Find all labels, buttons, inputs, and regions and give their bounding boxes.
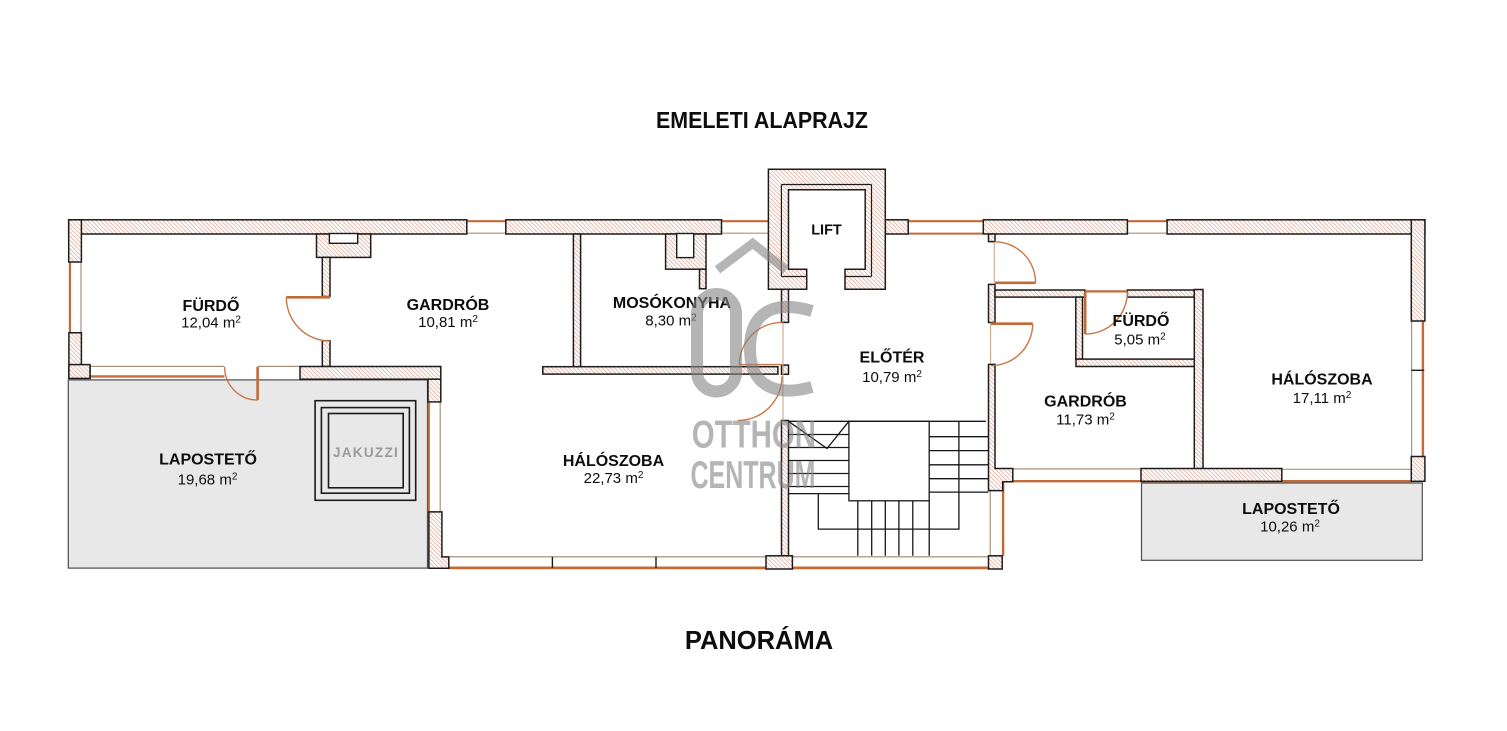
svg-text:LAPOSTETŐ: LAPOSTETŐ bbox=[1242, 499, 1340, 518]
svg-text:LIFT: LIFT bbox=[811, 223, 842, 239]
svg-text:10,26 m2: 10,26 m2 bbox=[1260, 519, 1320, 536]
svg-text:LAPOSTETŐ: LAPOSTETŐ bbox=[159, 450, 257, 469]
svg-text:17,11 m2: 17,11 m2 bbox=[1293, 390, 1352, 407]
svg-text:FÜRDŐ: FÜRDŐ bbox=[1113, 311, 1170, 330]
svg-text:HÁLÓSZOBA: HÁLÓSZOBA bbox=[1271, 370, 1373, 389]
svg-text:JAKUZZI: JAKUZZI bbox=[333, 445, 399, 460]
svg-text:10,79 m2: 10,79 m2 bbox=[862, 369, 922, 386]
svg-text:PANORÁMA: PANORÁMA bbox=[685, 626, 833, 655]
svg-text:GARDRÓB: GARDRÓB bbox=[407, 295, 490, 314]
svg-text:CENTRUM: CENTRUM bbox=[691, 454, 816, 497]
svg-text:11,73 m2: 11,73 m2 bbox=[1056, 412, 1115, 429]
svg-text:10,81 m2: 10,81 m2 bbox=[418, 314, 478, 331]
svg-text:12,04 m2: 12,04 m2 bbox=[181, 315, 241, 332]
svg-text:GARDRÓB: GARDRÓB bbox=[1044, 392, 1127, 411]
svg-text:8,30 m2: 8,30 m2 bbox=[645, 313, 697, 330]
svg-text:ELŐTÉR: ELŐTÉR bbox=[860, 348, 925, 367]
svg-text:OTTHON: OTTHON bbox=[692, 413, 816, 456]
svg-text:5,05 m2: 5,05 m2 bbox=[1114, 332, 1166, 349]
svg-text:FÜRDŐ: FÜRDŐ bbox=[183, 296, 240, 315]
svg-text:19,68 m2: 19,68 m2 bbox=[178, 472, 238, 489]
svg-text:22,73 m2: 22,73 m2 bbox=[584, 470, 644, 487]
svg-text:HÁLÓSZOBA: HÁLÓSZOBA bbox=[563, 451, 665, 470]
svg-text:EMELETI ALAPRAJZ: EMELETI ALAPRAJZ bbox=[656, 107, 868, 133]
